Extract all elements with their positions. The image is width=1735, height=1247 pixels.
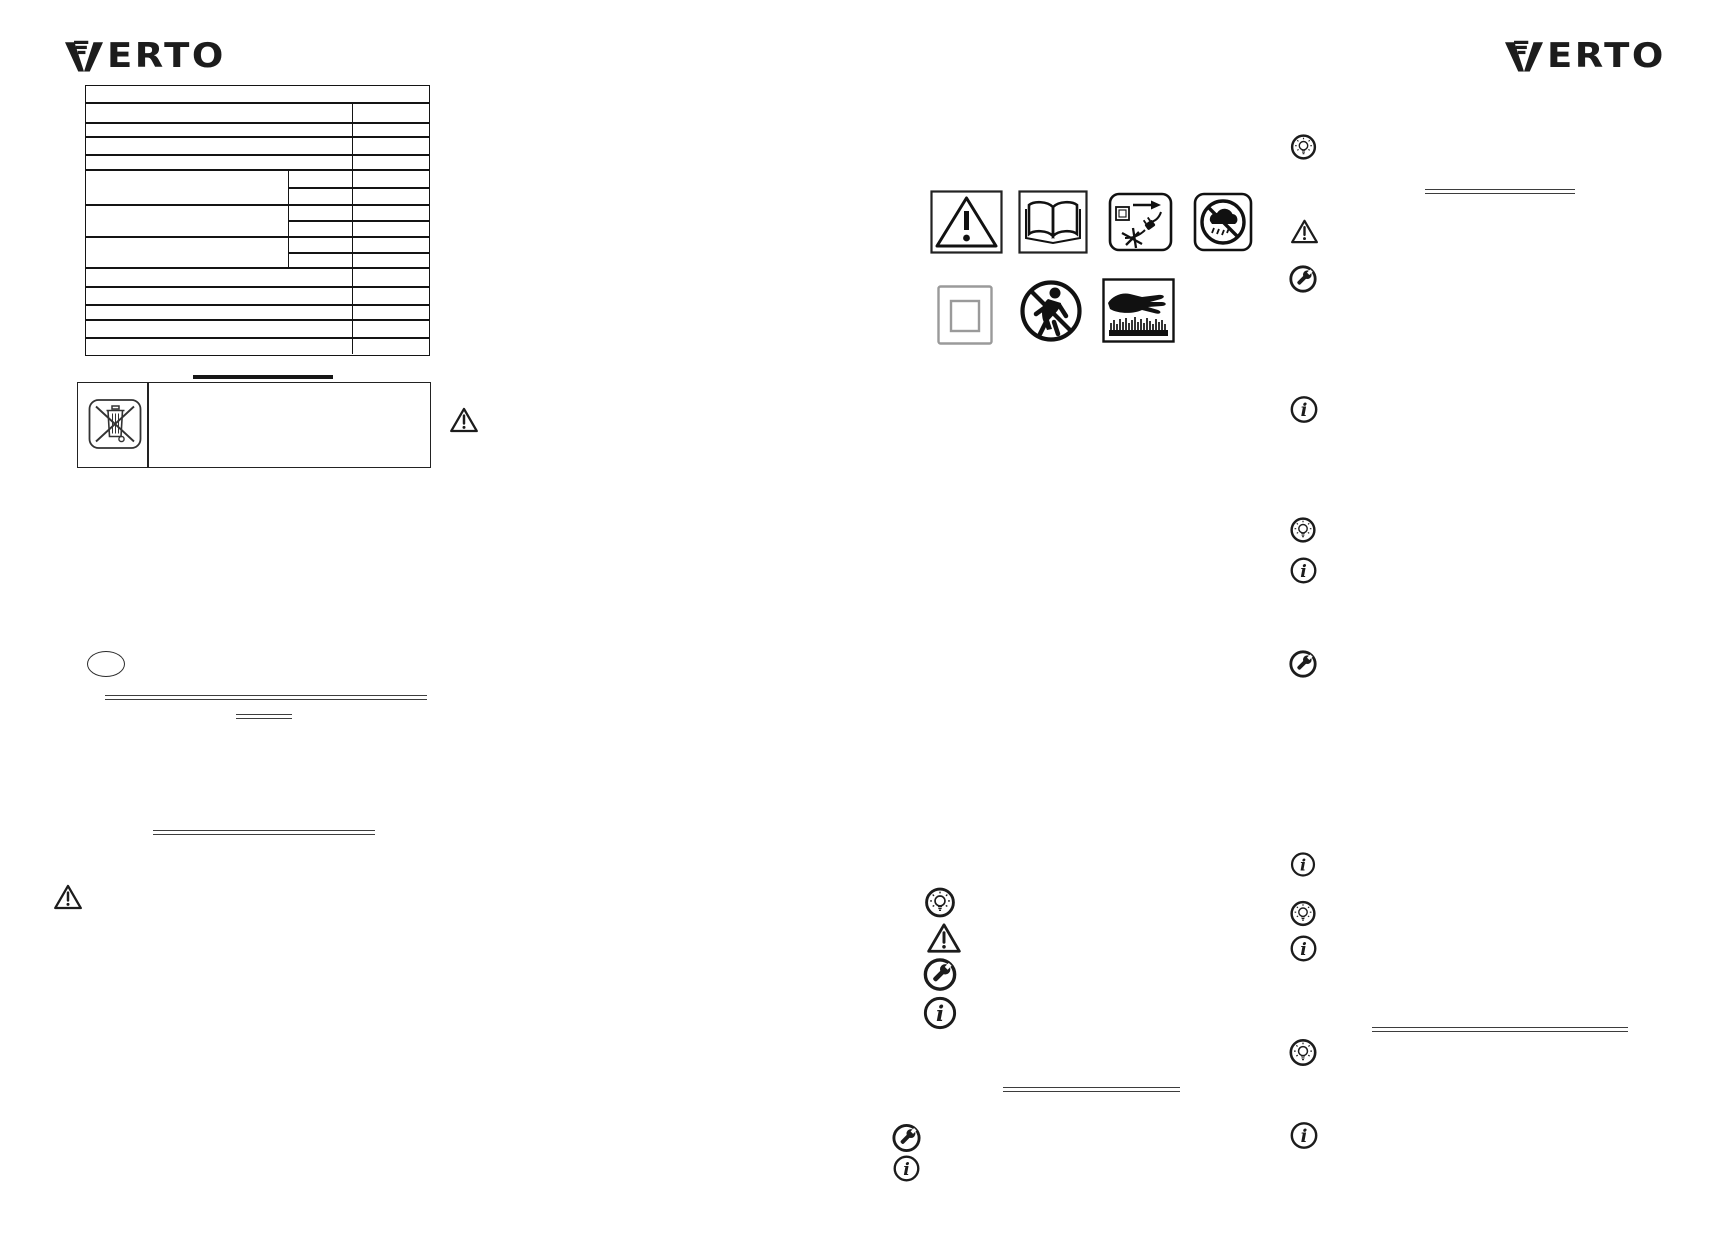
heading-rule [1003, 1087, 1180, 1092]
heading-rule [1372, 1027, 1628, 1032]
info-icon [922, 995, 958, 1031]
info-icon [1289, 394, 1319, 425]
table-gridline [86, 286, 429, 287]
table-gridline [86, 136, 429, 137]
table-gridline [352, 102, 353, 354]
weee-disposal-box [77, 382, 431, 468]
table-gridline [86, 154, 429, 155]
warning-triangle-icon [53, 881, 83, 913]
crossed-out-wheeled-bin-icon [88, 398, 142, 450]
keep-children-away-pictogram [1018, 278, 1084, 344]
table-gridline [86, 337, 429, 338]
table-gridline [86, 319, 429, 320]
table-gridline [86, 102, 429, 103]
manual-page-spread: i ERTO [0, 0, 1735, 1247]
warning-triangle-icon [1290, 217, 1319, 246]
service-wrench-icon [891, 1122, 922, 1154]
table-gridline [86, 204, 429, 205]
warning-triangle-icon [926, 921, 962, 955]
weee-box-divider [147, 383, 149, 467]
verto-logo-left: ERTO [65, 39, 226, 73]
table-gridline [86, 169, 429, 170]
verto-wordmark: ERTO [107, 40, 226, 70]
table-gridline [86, 267, 429, 268]
unplug-before-maintenance-pictogram [1108, 192, 1173, 252]
info-icon [1289, 851, 1317, 878]
service-wrench-icon [922, 956, 958, 993]
table-gridline [86, 304, 429, 305]
table-gridline [288, 169, 289, 267]
verto-v-glyph [65, 39, 103, 72]
tip-bulb-icon [923, 886, 957, 919]
heading-rule [105, 695, 427, 700]
table-gridline [288, 252, 429, 253]
service-wrench-icon [1288, 649, 1318, 679]
table-gridline [288, 220, 429, 221]
table-gridline [86, 122, 429, 123]
verto-v-glyph [1505, 39, 1543, 72]
info-icon [891, 1154, 922, 1183]
protect-from-rain-pictogram [1193, 192, 1253, 252]
info-icon [1289, 934, 1318, 963]
table-gridline [288, 187, 429, 188]
approval-mark-oval [87, 651, 125, 677]
tip-bulb-icon [1289, 516, 1317, 544]
tip-bulb-icon [1288, 1037, 1318, 1068]
service-wrench-icon [1288, 264, 1318, 294]
info-icon [1289, 556, 1318, 585]
class-ii-double-insulation-pictogram [937, 285, 993, 345]
spec-table [85, 85, 430, 356]
read-instruction-manual-pictogram [1018, 190, 1088, 254]
heading-rule [236, 714, 292, 719]
tip-bulb-icon [1289, 899, 1317, 928]
warning-triangle-icon [449, 404, 479, 436]
heading-rule [153, 830, 375, 835]
heading-rule [1425, 189, 1575, 194]
general-warning-pictogram [930, 190, 1003, 254]
verto-wordmark: ERTO [1547, 40, 1666, 70]
table-gridline [86, 236, 429, 237]
info-icon [1289, 1120, 1319, 1151]
sharp-elements-keep-hands-away-pictogram [1102, 278, 1175, 343]
tip-bulb-icon [1289, 133, 1318, 161]
section-heading-rule [193, 375, 333, 379]
verto-logo-right: ERTO [1505, 39, 1666, 73]
